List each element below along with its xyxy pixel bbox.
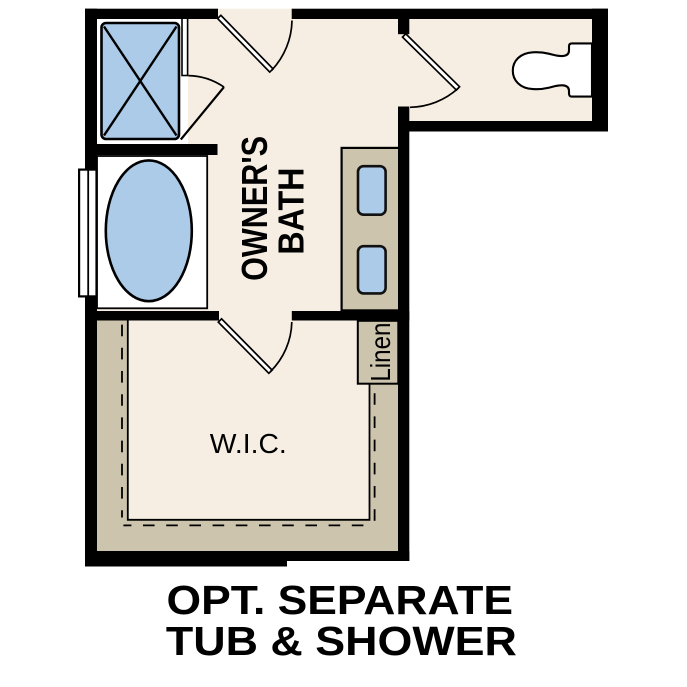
svg-text:OWNER'S: OWNER'S bbox=[234, 136, 275, 281]
svg-text:W.I.C.: W.I.C. bbox=[210, 428, 287, 459]
svg-text:TUB & SHOWER: TUB & SHOWER bbox=[166, 618, 517, 664]
svg-text:Linen: Linen bbox=[365, 323, 396, 382]
svg-text:BATH: BATH bbox=[270, 168, 311, 255]
svg-text:OPT. SEPARATE: OPT. SEPARATE bbox=[167, 577, 514, 623]
